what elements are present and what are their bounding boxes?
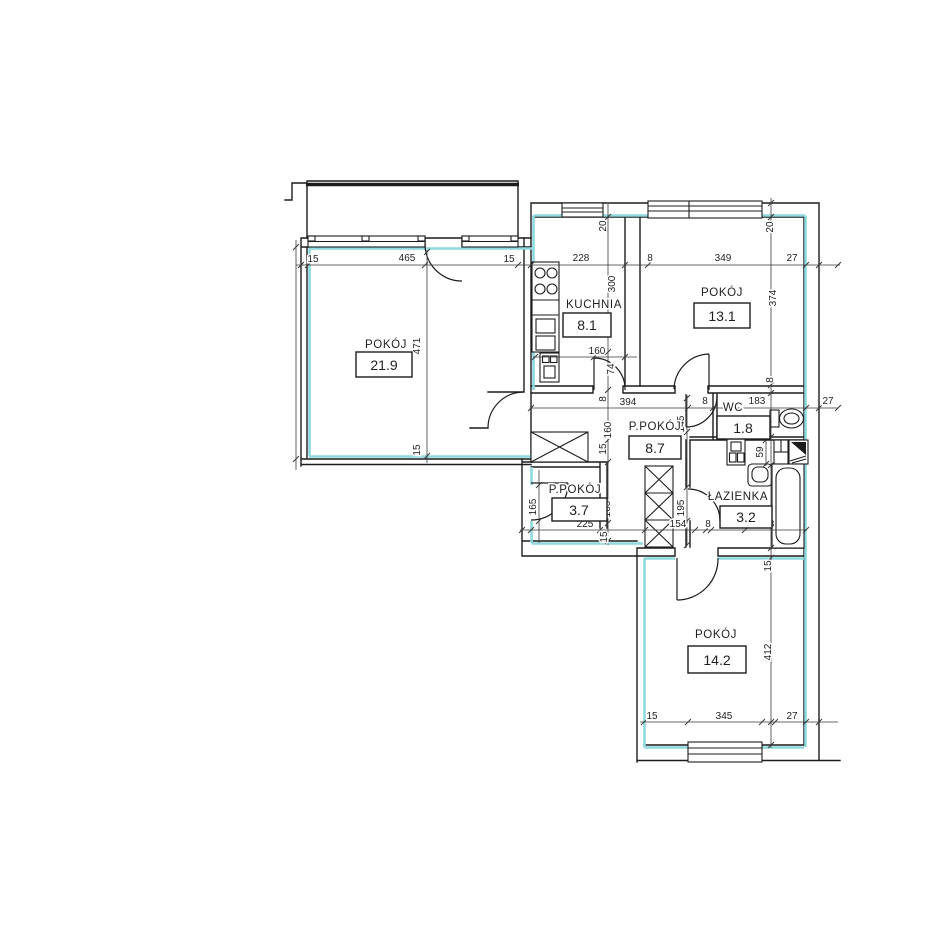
dim-label: 374	[768, 289, 779, 306]
room-name: POKÓJ	[365, 338, 407, 351]
room-label-pokoj-14-2: POKÓJ 14.2	[688, 628, 746, 673]
room-label-pokoj-13-1: POKÓJ 13.1	[694, 286, 750, 328]
room-area-value: 8.1	[577, 317, 597, 333]
room131-window-icon	[648, 201, 762, 218]
dim-label: 160	[589, 346, 606, 357]
floor-plan: 15 465 15 228 8 349 27 20 20 300 471 374…	[0, 0, 950, 936]
pedestal-sink-icon	[727, 439, 745, 465]
dim-label: 15	[763, 560, 774, 572]
kitchen-window-icon	[562, 203, 603, 217]
dim-label: 15	[598, 443, 609, 455]
living-room-window2-icon	[462, 236, 518, 247]
dim-label: 8	[598, 396, 609, 402]
dim-label: 27	[822, 396, 834, 407]
dim-label: 20	[765, 221, 776, 233]
room-name: WC	[723, 402, 743, 414]
washing-machine-icon	[789, 440, 808, 464]
dim-label: 394	[620, 397, 637, 408]
dim-label: 20	[598, 220, 609, 232]
living-room-window-icon	[308, 236, 425, 247]
dim-label: 27	[786, 711, 798, 722]
room142-window-icon	[688, 742, 762, 762]
room131-door-arc-icon	[674, 354, 709, 390]
room-name: P.POKÓJ	[629, 420, 682, 433]
room-label-kuchnia: KUCHNIA 8.1	[563, 299, 622, 337]
room-label-ppokoj-8-7: P.POKÓJ 8.7	[629, 420, 682, 459]
dim-label: 345	[716, 711, 733, 722]
dim-label: 27	[786, 253, 798, 264]
room-name: POKÓJ	[701, 286, 743, 299]
dim-label: 15	[412, 444, 423, 456]
room-name: POKÓJ	[695, 628, 737, 641]
dim-label: 165	[528, 498, 539, 515]
dim-label: 8	[705, 519, 711, 530]
dim-label: 59	[755, 446, 766, 458]
room-label-pokoj-21-9: POKÓJ 21.9	[356, 338, 412, 377]
dim-label: 412	[763, 643, 774, 660]
room-area-value: 14.2	[703, 652, 730, 668]
dim-label: 8	[647, 253, 653, 264]
dim-label: 15	[307, 254, 319, 265]
dim-label: 228	[573, 253, 590, 264]
toilet-icon	[770, 409, 804, 428]
wardrobe-shaft-icon	[531, 432, 588, 462]
dim-label: 349	[715, 253, 732, 264]
living-room-door-arc-icon	[488, 392, 523, 428]
dim-label: 154	[670, 519, 687, 530]
laundry-unit-icon	[774, 440, 788, 464]
room-label-wc: WC 1.8	[717, 402, 770, 439]
room-area-value: 21.9	[370, 357, 397, 373]
room142-door-arc-icon	[677, 558, 718, 600]
dim-label: 15	[503, 254, 515, 265]
dim-label: 74	[606, 363, 617, 375]
dim-label: 465	[399, 253, 416, 264]
dim-label: 183	[749, 396, 766, 407]
room-area-value: 3.7	[569, 502, 589, 518]
dim-label: 471	[412, 337, 423, 354]
dim-label: 15	[599, 531, 610, 543]
room-area-value: 3.2	[736, 509, 756, 525]
dim-label: 300	[607, 275, 618, 292]
duct-shaft-icon	[645, 466, 673, 547]
room-label-ppokoj-3-7: P.POKÓJ 3.7	[549, 483, 607, 521]
bathtub-icon	[772, 464, 804, 548]
room-name: ŁAZIENKA	[708, 491, 768, 503]
room-area-value: 1.8	[733, 420, 753, 436]
room-name: KUCHNIA	[566, 299, 622, 311]
room-area-value: 13.1	[708, 308, 735, 324]
dim-label: 160	[603, 421, 614, 438]
dim-label: 15	[646, 711, 658, 722]
dim-label: 8	[765, 377, 776, 383]
dim-label: 8	[702, 396, 708, 407]
dim-label: 195	[676, 499, 687, 516]
room-name: P.POKÓJ	[549, 483, 602, 496]
room-area-value: 8.7	[645, 440, 665, 456]
balcony	[285, 181, 519, 238]
